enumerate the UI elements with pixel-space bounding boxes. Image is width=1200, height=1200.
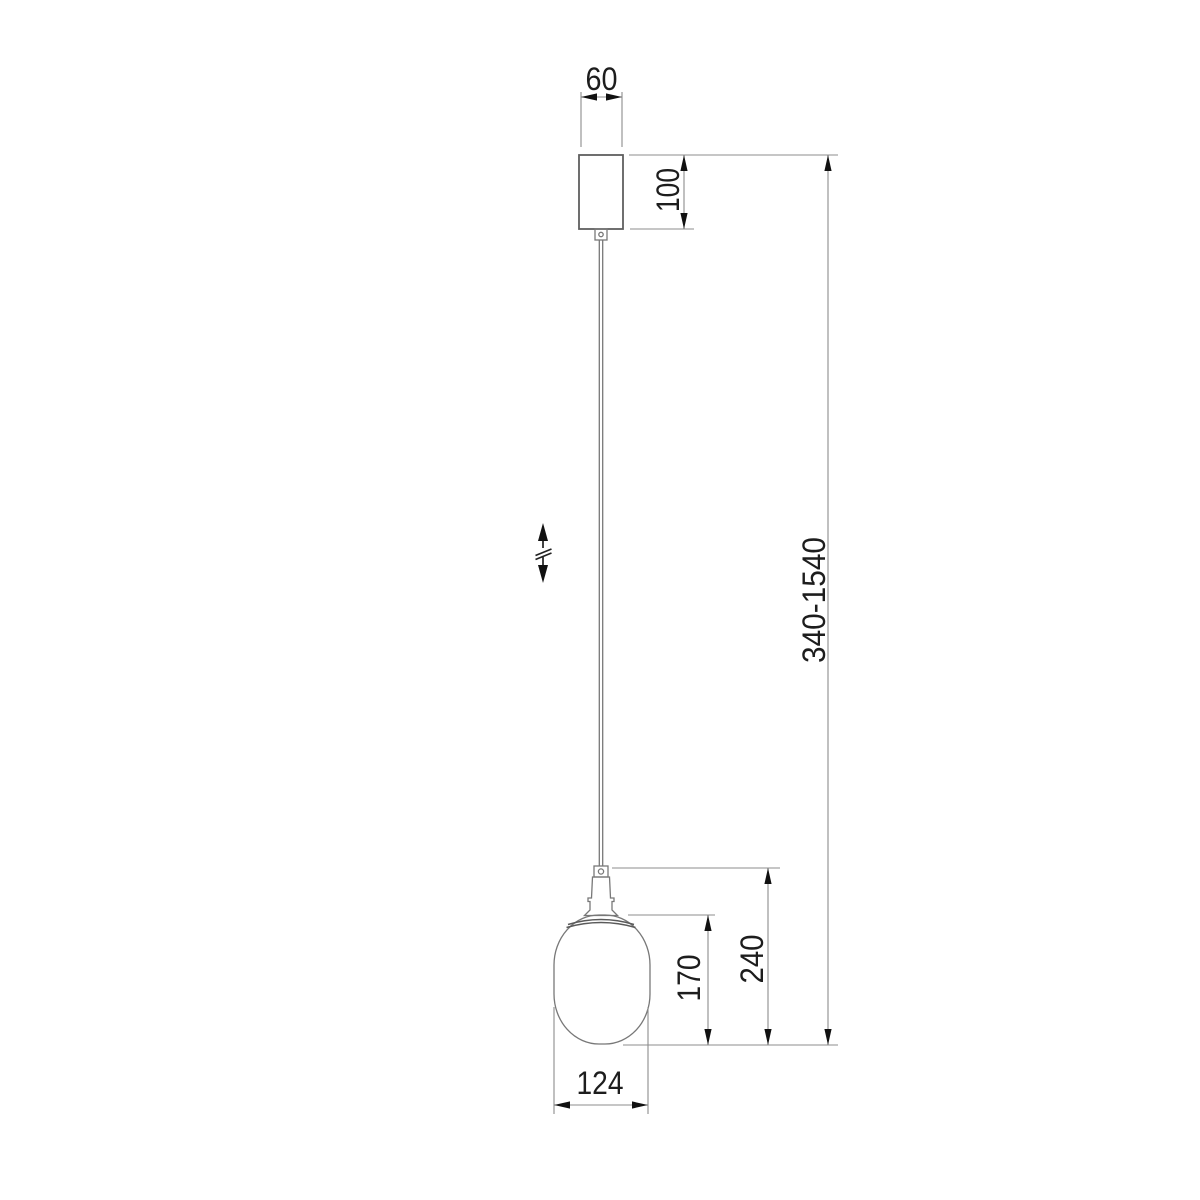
pendant-light-drawing: 60 100 340-1540 170 240 124 [0, 0, 1200, 1200]
dim-shade-width-label: 124 [577, 1065, 624, 1101]
dim-shade-height-label: 170 [671, 955, 707, 1002]
cord-entry-hole [598, 869, 603, 874]
height-adjustment-arrow-icon [536, 523, 552, 583]
arrowhead-down-icon [680, 213, 687, 229]
arrowhead-left-icon [554, 1101, 570, 1108]
dim-fixture-height-label: 240 [734, 935, 770, 984]
dim-canopy-height-label: 100 [650, 168, 686, 212]
fixture [554, 155, 650, 1044]
adjust-arrow-down-icon [538, 565, 548, 583]
arrowhead-down-icon [764, 1029, 771, 1045]
drawing-canvas: 60 100 340-1540 170 240 124 [0, 0, 1200, 1200]
dim-suspension-range-label: 340-1540 [796, 537, 832, 663]
cable-grip [595, 229, 607, 240]
dimension-canopy-height: 100 [630, 155, 694, 229]
dim-canopy-width-label: 60 [586, 61, 618, 97]
arrowhead-down-icon [704, 1029, 711, 1045]
socket-outline [585, 877, 618, 916]
arrowhead-up-icon [704, 915, 711, 931]
shade-rim-lower-arc [567, 923, 636, 928]
arrowhead-up-icon [764, 868, 771, 884]
dimension-suspension-range: 340-1540 [796, 155, 832, 1045]
arrowhead-up-icon [824, 155, 831, 171]
arrowhead-down-icon [824, 1029, 831, 1045]
canopy-outline [579, 155, 623, 229]
cord-entry-block [594, 866, 608, 877]
dimension-canopy-width: 60 [581, 61, 622, 147]
cable-grip-hole [599, 232, 603, 236]
arrowhead-right-icon [632, 1101, 648, 1108]
adjust-arrow-up-icon [538, 523, 548, 541]
dimension-shade-width: 124 [554, 1007, 648, 1114]
shade-outline [554, 915, 650, 1044]
